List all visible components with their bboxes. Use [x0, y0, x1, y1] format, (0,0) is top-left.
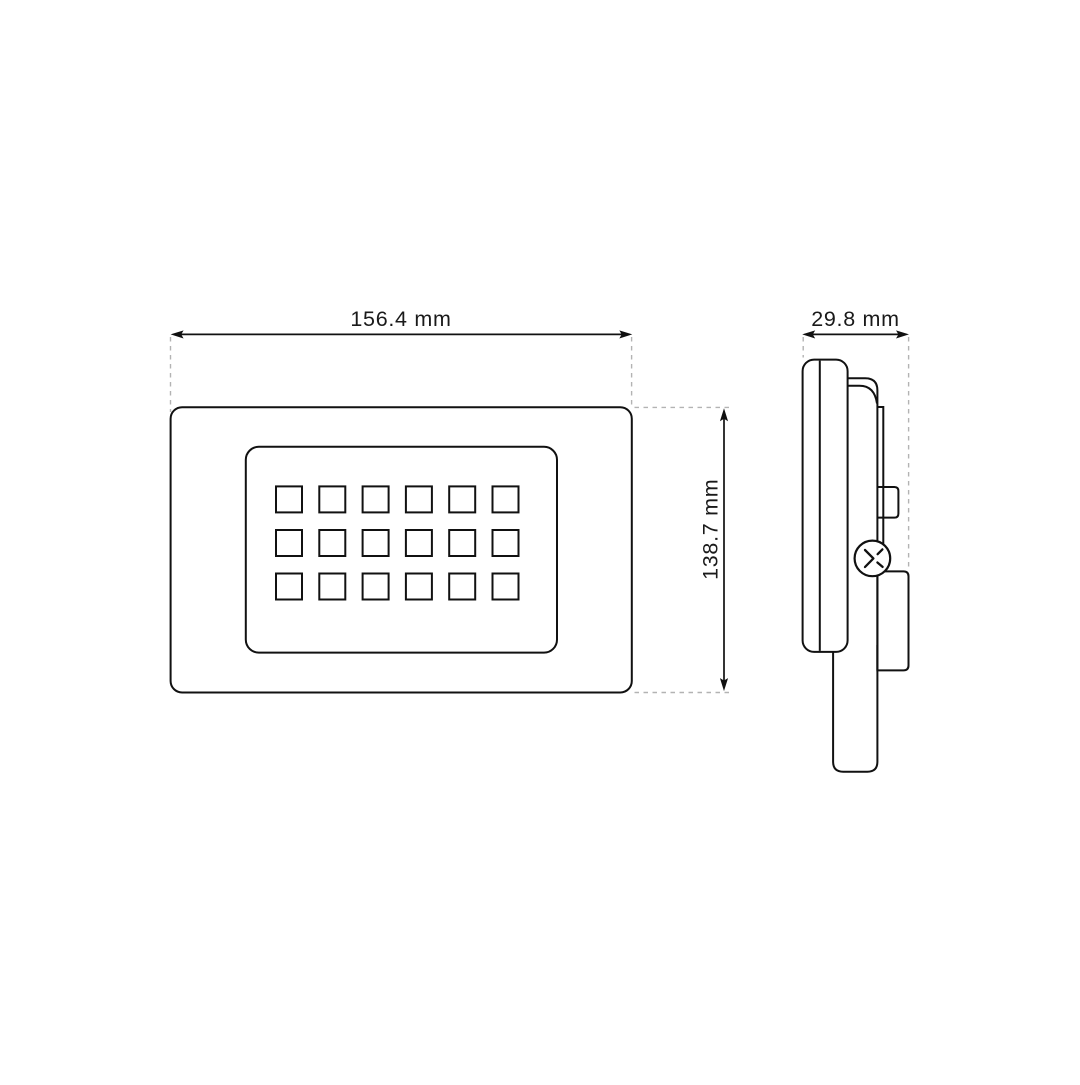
svg-text:156.4 mm: 156.4 mm: [350, 307, 451, 331]
svg-text:29.8 mm: 29.8 mm: [811, 307, 900, 331]
svg-text:138.7 mm: 138.7 mm: [698, 479, 722, 580]
